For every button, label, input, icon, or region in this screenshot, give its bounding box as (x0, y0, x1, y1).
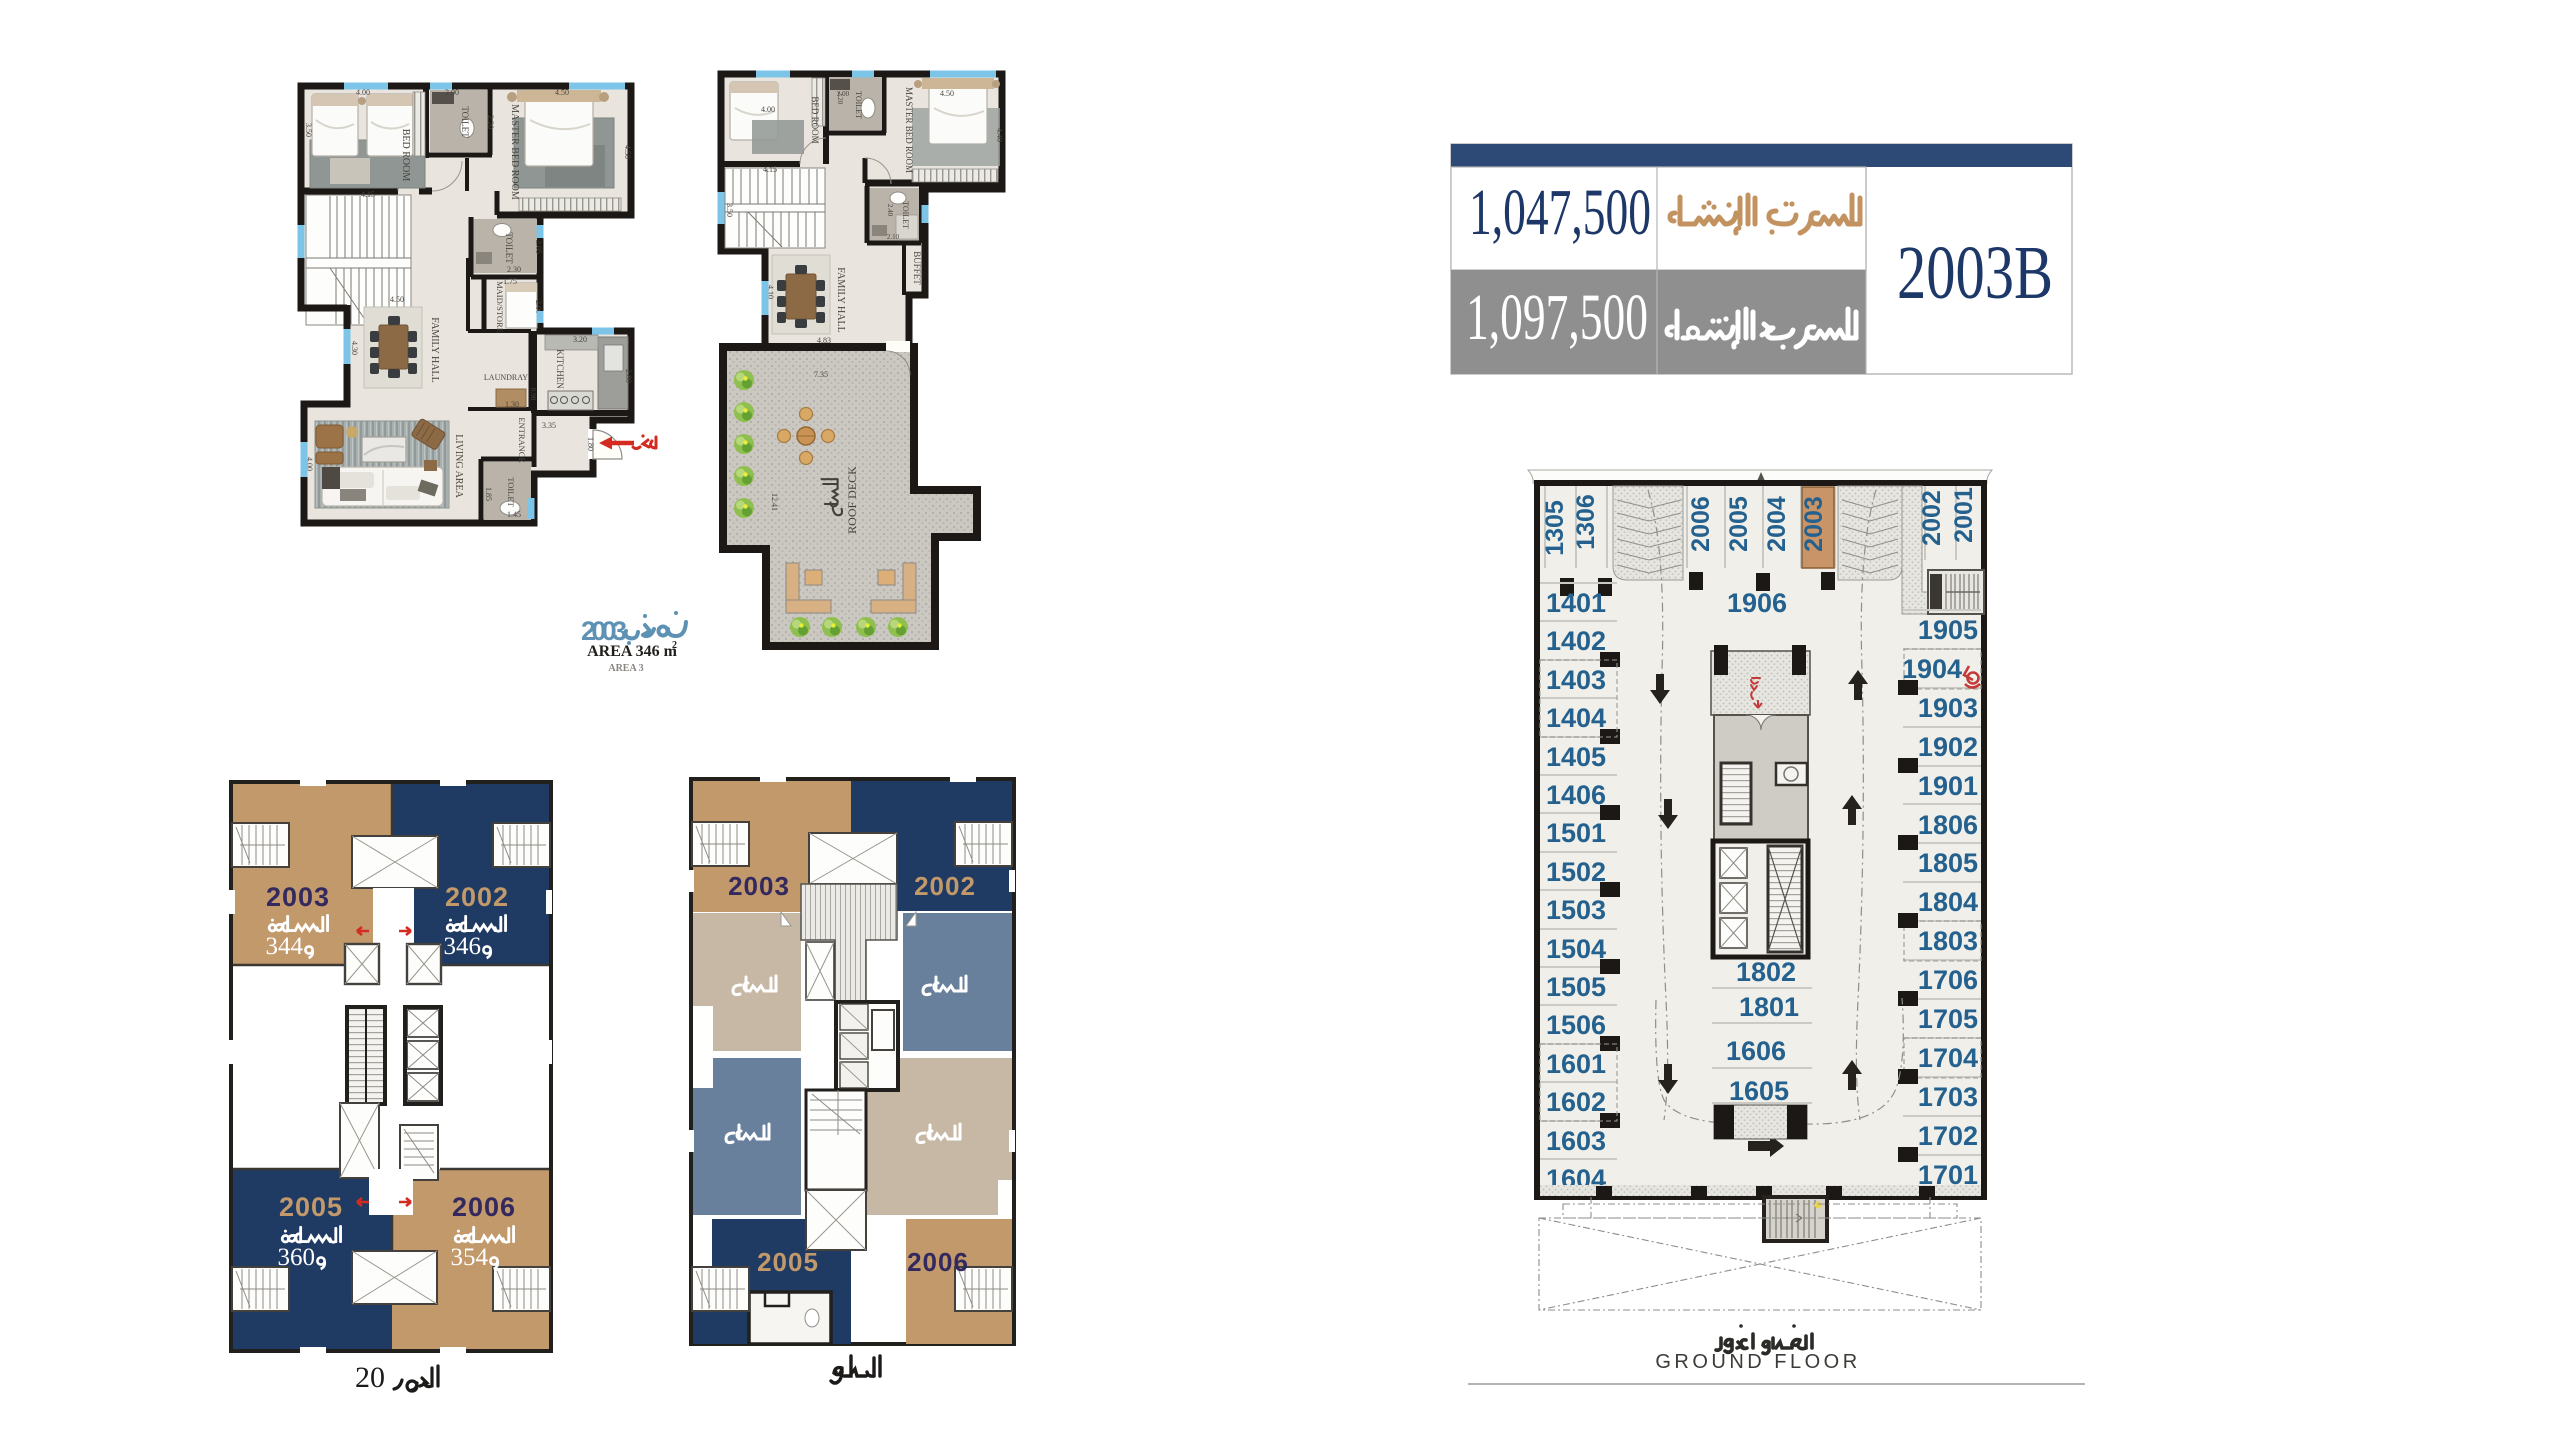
svg-text:LIVING AREA: LIVING AREA (453, 434, 464, 498)
svg-text:1,097,500: 1,097,500 (1466, 281, 1648, 354)
svg-text:1704: 1704 (1918, 1043, 1978, 1073)
svg-text:4.50: 4.50 (555, 88, 569, 97)
svg-text:3.20: 3.20 (573, 335, 587, 344)
svg-text:3.50: 3.50 (304, 123, 313, 137)
svg-text:ENTRANCE: ENTRANCE (517, 417, 527, 462)
svg-text:20: 20 (355, 1361, 385, 1394)
svg-text:12.41: 12.41 (770, 493, 779, 511)
svg-text:BED ROOM: BED ROOM (810, 96, 820, 143)
svg-text:2005: 2005 (279, 1192, 343, 1222)
svg-text:1706: 1706 (1918, 965, 1978, 995)
svg-text:1.45: 1.45 (507, 510, 521, 519)
svg-text:1402: 1402 (1546, 626, 1606, 656)
svg-text:360: 360 (278, 1244, 316, 1271)
svg-text:1404: 1404 (1546, 703, 1606, 733)
svg-text:TOILET: TOILET (506, 477, 516, 507)
svg-text:3.35: 3.35 (542, 421, 556, 430)
svg-text:1905: 1905 (1918, 615, 1978, 645)
svg-text:2005: 2005 (1725, 496, 1753, 552)
svg-text:1406: 1406 (1546, 780, 1606, 810)
svg-text:1.80: 1.80 (586, 437, 595, 451)
svg-text:4.40: 4.40 (995, 128, 1004, 142)
svg-text:BED ROOM: BED ROOM (400, 129, 411, 182)
svg-text:1505: 1505 (1546, 972, 1606, 1002)
svg-text:2003: 2003 (266, 882, 330, 912)
svg-text:GROUND FLOOR: GROUND FLOOR (1655, 1351, 1860, 1373)
svg-text:4.50: 4.50 (940, 89, 954, 98)
svg-text:1501: 1501 (1546, 818, 1606, 848)
svg-text:1401: 1401 (1546, 588, 1606, 618)
svg-text:1504: 1504 (1546, 934, 1606, 964)
svg-text:1.30: 1.30 (505, 400, 519, 409)
svg-text:1503: 1503 (1546, 895, 1606, 925)
svg-text:4.50: 4.50 (623, 145, 632, 159)
svg-text:2001: 2001 (1950, 487, 1978, 543)
svg-text:1803: 1803 (1918, 926, 1978, 956)
svg-text:1506: 1506 (1546, 1010, 1606, 1040)
svg-text:4.15: 4.15 (763, 165, 777, 174)
svg-text:1603: 1603 (1546, 1126, 1606, 1156)
svg-text:2.20: 2.20 (486, 115, 495, 129)
svg-text:4.50: 4.50 (390, 295, 404, 304)
svg-text:4.83: 4.83 (817, 336, 831, 345)
svg-text:ROOF DECK: ROOF DECK (845, 466, 859, 534)
svg-text:4.30: 4.30 (350, 341, 359, 355)
svg-text:2003: 2003 (728, 871, 790, 901)
svg-text:1605: 1605 (1729, 1076, 1789, 1106)
svg-text:1804: 1804 (1918, 887, 1978, 917)
svg-text:TOILET: TOILET (460, 106, 470, 138)
svg-text:0.90: 0.90 (529, 388, 537, 401)
svg-text:1,047,500: 1,047,500 (1469, 176, 1651, 249)
svg-text:2.10: 2.10 (887, 233, 900, 241)
svg-text:BUFFET: BUFFET (912, 251, 922, 285)
svg-text:1805: 1805 (1918, 848, 1978, 878)
svg-text:1.75: 1.75 (503, 277, 517, 286)
svg-text:2003: 2003 (581, 616, 627, 646)
svg-text:346: 346 (444, 933, 482, 960)
svg-text:MASTER BED ROOM: MASTER BED ROOM (904, 87, 914, 173)
svg-text:1306: 1306 (1572, 494, 1600, 550)
svg-text:KITCHEN: KITCHEN (555, 349, 565, 389)
svg-text:1902: 1902 (1918, 732, 1978, 762)
svg-text:3.50: 3.50 (725, 203, 734, 217)
svg-text:1903: 1903 (1918, 693, 1978, 723)
svg-text:2.05: 2.05 (534, 240, 543, 254)
svg-text:1904: 1904 (1902, 654, 1962, 684)
svg-text:2006: 2006 (452, 1192, 516, 1222)
svg-text:1405: 1405 (1546, 742, 1606, 772)
svg-text:TOILET: TOILET (901, 201, 910, 229)
svg-text:FAMILY HALL: FAMILY HALL (429, 317, 440, 382)
svg-text:MASTER BED ROOM: MASTER BED ROOM (509, 104, 520, 200)
svg-text:1606: 1606 (1726, 1036, 1786, 1066)
svg-text:2.80: 2.80 (624, 369, 633, 383)
svg-text:2006: 2006 (907, 1247, 969, 1277)
svg-text:1703: 1703 (1918, 1082, 1978, 1112)
svg-text:1801: 1801 (1739, 992, 1799, 1022)
svg-text:1702: 1702 (1918, 1121, 1978, 1151)
svg-text:2.20: 2.20 (836, 92, 844, 105)
svg-text:1806: 1806 (1918, 810, 1978, 840)
svg-text:2006: 2006 (1687, 496, 1715, 552)
svg-text:TOILET: TOILET (504, 232, 514, 264)
svg-text:MAID/STORE: MAID/STORE (495, 281, 505, 333)
svg-text:2002: 2002 (914, 871, 976, 901)
svg-text:1802: 1802 (1736, 957, 1796, 987)
svg-text:2002: 2002 (445, 882, 509, 912)
svg-text:1502: 1502 (1546, 857, 1606, 887)
svg-text:4.00: 4.00 (761, 105, 775, 114)
svg-text:AREA 346 m: AREA 346 m (587, 643, 677, 660)
svg-text:TOILET: TOILET (854, 91, 863, 119)
svg-text:2.40: 2.40 (886, 204, 894, 217)
svg-text:354: 354 (451, 1244, 489, 1271)
svg-text:2004: 2004 (1763, 496, 1791, 552)
svg-text:2: 2 (672, 640, 677, 651)
svg-text:2003B: 2003B (1897, 231, 2053, 315)
svg-text:4.15: 4.15 (361, 190, 375, 199)
svg-text:2.30: 2.30 (507, 265, 521, 274)
svg-text:344: 344 (266, 933, 304, 960)
svg-text:1305: 1305 (1541, 500, 1569, 556)
svg-text:1906: 1906 (1727, 588, 1787, 618)
svg-text:2003: 2003 (1800, 496, 1828, 552)
svg-text:FAMILY HALL: FAMILY HALL (835, 267, 846, 332)
svg-text:AREA 3: AREA 3 (608, 663, 643, 674)
svg-text:LAUNDRAY: LAUNDRAY (484, 373, 528, 382)
svg-text:2002: 2002 (1918, 490, 1946, 546)
svg-text:1403: 1403 (1546, 665, 1606, 695)
svg-text:1705: 1705 (1918, 1004, 1978, 1034)
svg-text:1901: 1901 (1918, 771, 1978, 801)
svg-text:1.85: 1.85 (484, 487, 493, 501)
svg-text:2005: 2005 (757, 1247, 819, 1277)
svg-text:1602: 1602 (1546, 1087, 1606, 1117)
svg-text:7.35: 7.35 (814, 370, 828, 379)
svg-text:1601: 1601 (1546, 1049, 1606, 1079)
